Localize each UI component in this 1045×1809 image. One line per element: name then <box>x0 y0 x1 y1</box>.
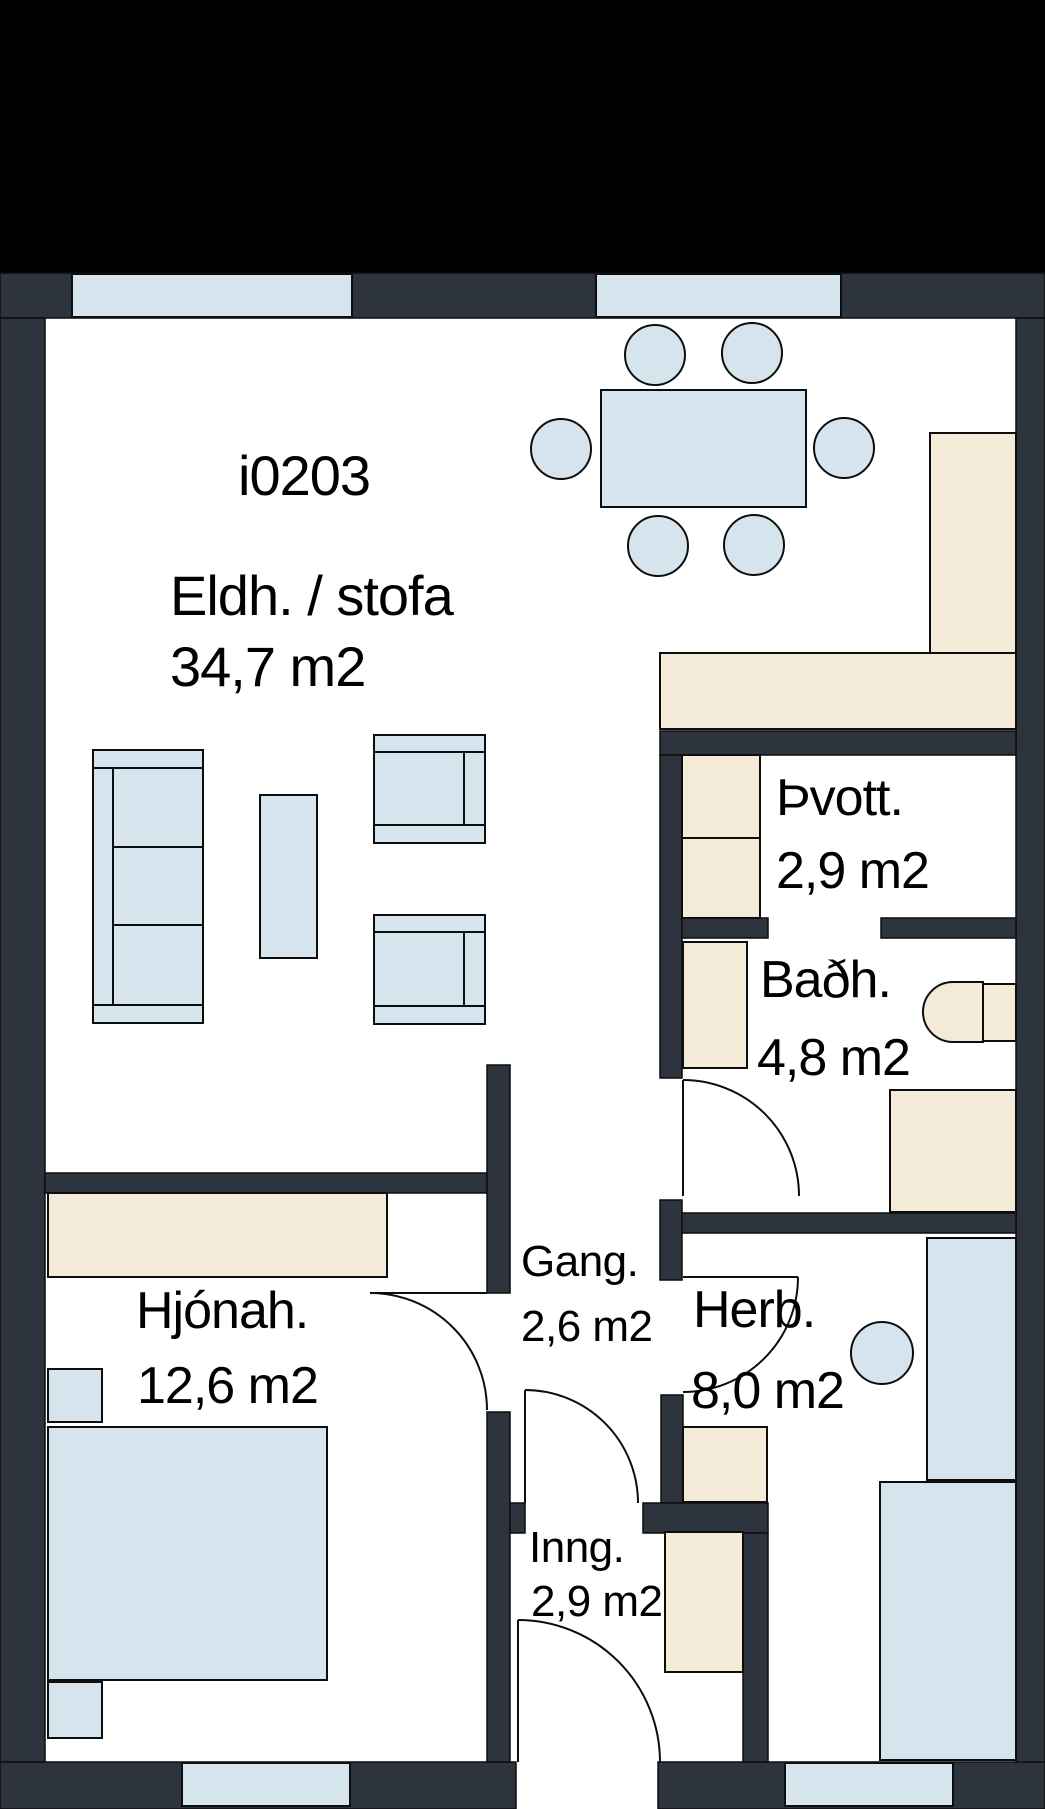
area-laundry-label: 2,9 m2 <box>776 845 929 897</box>
room-hallway-label: Gang. <box>521 1240 638 1284</box>
wall-living-hallway <box>487 1065 510 1293</box>
toilet-tank <box>983 984 1016 1041</box>
sofa-cushion <box>113 768 203 847</box>
toilet-bowl <box>923 982 983 1042</box>
sofa-cushion <box>113 925 203 1005</box>
dining-chair <box>625 325 685 385</box>
floor-plan-drawing <box>0 0 1045 1809</box>
room-entrance-label: Inng. <box>529 1526 624 1570</box>
coffee-table <box>260 795 317 958</box>
laundry-cabinet <box>682 838 760 918</box>
wall-exterior-left <box>0 318 45 1762</box>
wall-hall-entrance-right <box>643 1503 768 1533</box>
dining-chair <box>531 419 591 479</box>
dining-table <box>601 390 806 507</box>
floor-plan: i0203Eldh. / stofa34,7 m2Þvott.2,9 m2Bað… <box>0 0 1045 1809</box>
header-band <box>0 0 1045 273</box>
bedroom-stool <box>851 1322 913 1384</box>
area-bathroom-label: 4,8 m2 <box>757 1032 910 1084</box>
wall-exterior-right <box>1016 318 1045 1809</box>
bedroom-cabinet <box>683 1427 767 1502</box>
laundry-cabinet <box>682 755 760 838</box>
room-laundry-label: Þvott. <box>776 772 903 824</box>
nightstand <box>48 1682 102 1738</box>
window-living-2 <box>596 274 841 317</box>
area-kitchen-living-label: 34,7 m2 <box>170 639 365 695</box>
kitchen-counter-side <box>930 433 1016 653</box>
window-living-1 <box>72 274 352 317</box>
room-master-bedroom-label: Hjónah. <box>136 1285 308 1337</box>
nightstand <box>48 1369 102 1422</box>
sofa-cushion <box>113 847 203 925</box>
armchair-seat <box>374 752 464 825</box>
wall-bedroom-west <box>661 1395 683 1503</box>
room-kitchen-living-label: Eldh. / stofa <box>170 568 453 624</box>
wall-entrance-west <box>487 1412 510 1762</box>
sofa-armrest-top <box>93 750 203 768</box>
window-bedroom <box>785 1763 953 1806</box>
wall-bedroom-entrance <box>743 1533 768 1762</box>
window-master-bed <box>182 1763 350 1806</box>
sofa-armrest-bottom <box>93 1005 203 1023</box>
area-entrance-label: 2,9 m2 <box>531 1580 663 1624</box>
dining-chair <box>814 418 874 478</box>
kitchen-counter <box>660 653 1016 729</box>
armchair-back <box>464 752 485 825</box>
shower-unit <box>890 1090 1016 1212</box>
wall-laundry-bath-left <box>682 918 768 938</box>
bedroom-desk <box>927 1238 1016 1480</box>
wall-bath-west-stub <box>660 1200 682 1280</box>
dining-chair <box>628 516 688 576</box>
wall-kitchen-laundry <box>660 731 1016 755</box>
bedroom-wardrobe <box>48 1193 387 1277</box>
wall-laundry-bath-right <box>881 918 1016 938</box>
bedroom-bed <box>880 1482 1016 1760</box>
area-master-bedroom-label: 12,6 m2 <box>137 1360 318 1412</box>
dining-chair <box>722 323 782 383</box>
unit-id-label: i0203 <box>238 448 370 504</box>
wall-laundry-west <box>660 755 682 1078</box>
armchair-back <box>464 932 485 1006</box>
room-bathroom-label: Baðh. <box>760 954 891 1006</box>
room-bedroom-label: Herb. <box>693 1284 815 1336</box>
wall-bath-bedroom <box>682 1213 1016 1233</box>
dining-chair <box>724 515 784 575</box>
armchair-seat <box>374 932 464 1006</box>
wall-hall-entrance-stub <box>510 1503 525 1533</box>
bath-cabinet <box>683 942 747 1068</box>
master-bed <box>48 1427 327 1680</box>
wall-bedroom-living <box>45 1173 487 1193</box>
area-hallway-label: 2,6 m2 <box>521 1305 653 1349</box>
area-bedroom-label: 8,0 m2 <box>691 1365 844 1417</box>
entrance-cabinet <box>665 1532 743 1672</box>
